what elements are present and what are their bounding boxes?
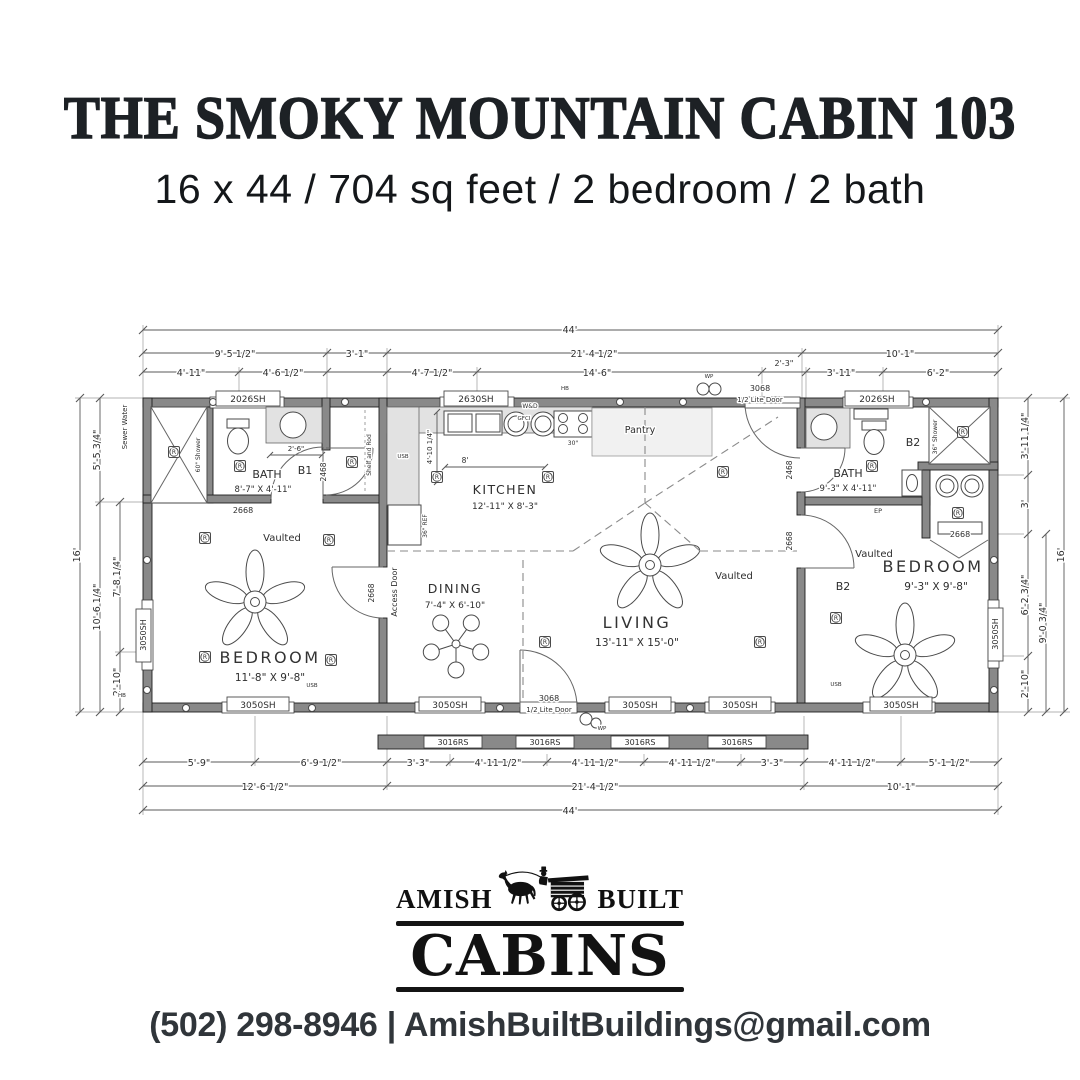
phone-number: (502) 298-8946 (149, 1006, 377, 1044)
dim-label: 21'-4 1/2" (571, 349, 618, 360)
dim-label: 10'-6 1/4" (92, 584, 103, 631)
door-label: 2668 (367, 583, 376, 602)
door-label: 2468 (319, 462, 328, 481)
dim-label: 3'-1" (346, 349, 369, 360)
contact-divider: | (387, 1006, 396, 1044)
window-label: 3016RS (722, 738, 753, 747)
dim-label: 10'-1" (887, 782, 916, 793)
window-label: 2026SH (859, 395, 894, 405)
window-label: 3050SH (622, 701, 657, 711)
dim-label: 6'-9 1/2" (301, 758, 342, 769)
dim-label: 16' (72, 548, 83, 563)
fan-bedroom1 (203, 550, 307, 649)
usb-outlet-label: USB (397, 454, 409, 460)
toilet-1 (227, 419, 249, 454)
fridge-label: 36" REF (422, 514, 429, 538)
dim-label: 6'-2" (927, 368, 950, 379)
window-label: 3050SH (883, 701, 918, 711)
access-door-label: Access Door (390, 567, 399, 617)
window-label: 3050SH (722, 701, 757, 711)
room-dims-kitchen: 12'-11" X 8'-3" (472, 502, 538, 512)
brand-logo: AMISH (396, 856, 684, 993)
small-dim: 2'-6" (288, 445, 305, 453)
sewer-water-label: Sewer Water (121, 405, 129, 450)
dim-label: 5'-5 3/4" (92, 430, 103, 471)
logo-cabins: CABINS (396, 927, 684, 986)
hose-bib-label: HB (118, 693, 126, 699)
fan-bedroom2 (853, 603, 957, 702)
pantry-label: Pantry (625, 425, 656, 436)
washer-dryer-label: W&D (522, 403, 538, 410)
dim-label: 4'-11 1/2" (829, 758, 876, 769)
door-label: 2668 (785, 531, 794, 550)
room-dims-bath2: 9'-3" X 4'-11" (820, 484, 877, 494)
fan-living (598, 513, 702, 612)
dim-overall-top: 44' (563, 325, 578, 336)
door-label: 3068 (750, 384, 770, 393)
door-label: 2468 (785, 460, 794, 479)
dim-label: 3'-3" (761, 758, 784, 769)
dim-label: 4'-11 1/2" (572, 758, 619, 769)
window-label: 3050SH (139, 619, 148, 650)
shower-60-label: 60" Shower (195, 437, 202, 472)
usb-outlet-label: USB (306, 683, 318, 689)
usb-outlet-label: USB (830, 682, 842, 688)
dim-label: 5'-9" (188, 758, 211, 769)
dim-label: 4'-6 1/2" (263, 368, 304, 379)
vanity-1 (266, 407, 322, 443)
room-name-bedroom2: BEDROOM (882, 557, 983, 576)
dim-label: 12'-6 1/2" (242, 782, 289, 793)
room-dims-bedroom1: 11'-8" X 9'-8" (235, 672, 305, 684)
linen-niche (902, 470, 922, 496)
hose-bib-label: HB (561, 386, 569, 392)
range-label: 30" (568, 440, 579, 447)
window-label: 3016RS (438, 738, 469, 747)
small-dim: 4'-10 1/4" (426, 430, 434, 465)
wp-outlet-label: WP (598, 726, 607, 732)
room-dims-bath1: 8'-7" X 4'-11" (235, 485, 292, 495)
mirror-cabinet (854, 409, 888, 419)
closet-b2-label: B2 (906, 436, 921, 449)
closet-b2-label: B2 (836, 580, 851, 593)
room-name-bath1: BATH (252, 468, 281, 481)
room-name-living: LIVING (603, 613, 672, 632)
window-label: 2630SH (458, 395, 493, 405)
room-name-bedroom1: BEDROOM (219, 648, 320, 667)
dim-label: 5'-1 1/2" (929, 758, 970, 769)
contact-line: (502) 298-8946 | AmishBuiltBuildings@gma… (0, 1006, 1080, 1045)
dim-label: 3' (1020, 500, 1031, 509)
window-label: 3016RS (625, 738, 656, 747)
shower-36-label: 36" Shower (932, 419, 939, 454)
electrical-panel-label: EP (874, 507, 882, 515)
dim-label: 16' (1056, 548, 1067, 563)
door-label: 1/2 Lite Door (737, 396, 783, 404)
fridge (388, 505, 421, 545)
door-label: 2668 (233, 506, 253, 515)
window-label: 3016RS (530, 738, 561, 747)
small-dim: 8' (462, 456, 469, 465)
dim-label: 9'-5 1/2" (215, 349, 256, 360)
dim-label: 3'-3" (407, 758, 430, 769)
room-dims-bedroom2: 9'-3" X 9'-8" (904, 581, 968, 593)
wp-outlet-label: WP (705, 374, 714, 380)
dim-label: 4'-11 1/2" (475, 758, 522, 769)
logo-amish: AMISH (396, 886, 493, 920)
room-name-dining: DINING (428, 581, 482, 596)
dim-label: 10'-1" (886, 349, 915, 360)
dimension-labels-bottom: 5'-9" 6'-9 1/2" 3'-3" 4'-11 1/2" 4'-11 1… (188, 758, 970, 817)
shelf-rod-label: Shelf and Rod (366, 434, 373, 476)
vaulted-label: Vaulted (715, 571, 753, 582)
room-dims-dining: 7'-4" X 6'-10" (425, 601, 485, 611)
window-label: 2026SH (230, 395, 265, 405)
dim-label: 3'-11 1/4" (1020, 413, 1031, 460)
dim-label: 3'-11" (827, 368, 856, 379)
kitchen-counter (387, 407, 592, 545)
horse-wagon-icon (498, 858, 593, 920)
dim-label: 4'-11" (177, 368, 206, 379)
vaulted-label: Vaulted (263, 533, 301, 544)
door-label: 3068 (539, 694, 559, 703)
dim-label: 7'-8 1/4" (112, 557, 123, 598)
window-label: 3050SH (991, 618, 1000, 649)
dim-label: 4'-7 1/2" (412, 368, 453, 379)
dining-chandelier (423, 615, 488, 678)
email-address: AmishBuiltBuildings@gmail.com (404, 1006, 931, 1044)
room-name-kitchen: KITCHEN (473, 482, 538, 497)
door-label: 1/2 Lite Door (526, 706, 572, 714)
room-name-bath2: BATH (833, 467, 862, 480)
dim-label: 6'-2 3/4" (1020, 575, 1031, 616)
closet-b1-label: B1 (298, 464, 313, 477)
dim-label: 4'-11 1/2" (669, 758, 716, 769)
door-label: 2668 (950, 530, 970, 539)
dim-label: 21'-4 1/2" (572, 782, 619, 793)
room-dims-living: 13'-11" X 15'-0" (595, 637, 679, 649)
window-label: 3050SH (240, 701, 275, 711)
toilet-2 (862, 421, 886, 455)
dimension-labels-top: 44' 9'-5 1/2" 3'-1" 21'-4 1/2" 10'-1" 4'… (177, 325, 950, 379)
dim-label: 9'-0 3/4" (1038, 603, 1049, 644)
dim-overall-bottom: 44' (563, 806, 578, 817)
window-label: 3050SH (432, 701, 467, 711)
dim-label: 2'-10" (1020, 670, 1031, 699)
dim-label: 2'-10" (112, 668, 123, 697)
closet-2-fixtures (936, 475, 983, 534)
logo-built: BUILT (597, 886, 684, 920)
dim-label: 14'-6" (583, 368, 612, 379)
dim-label: 2'-3" (775, 359, 794, 368)
gfci-label: GFCI (518, 416, 531, 422)
